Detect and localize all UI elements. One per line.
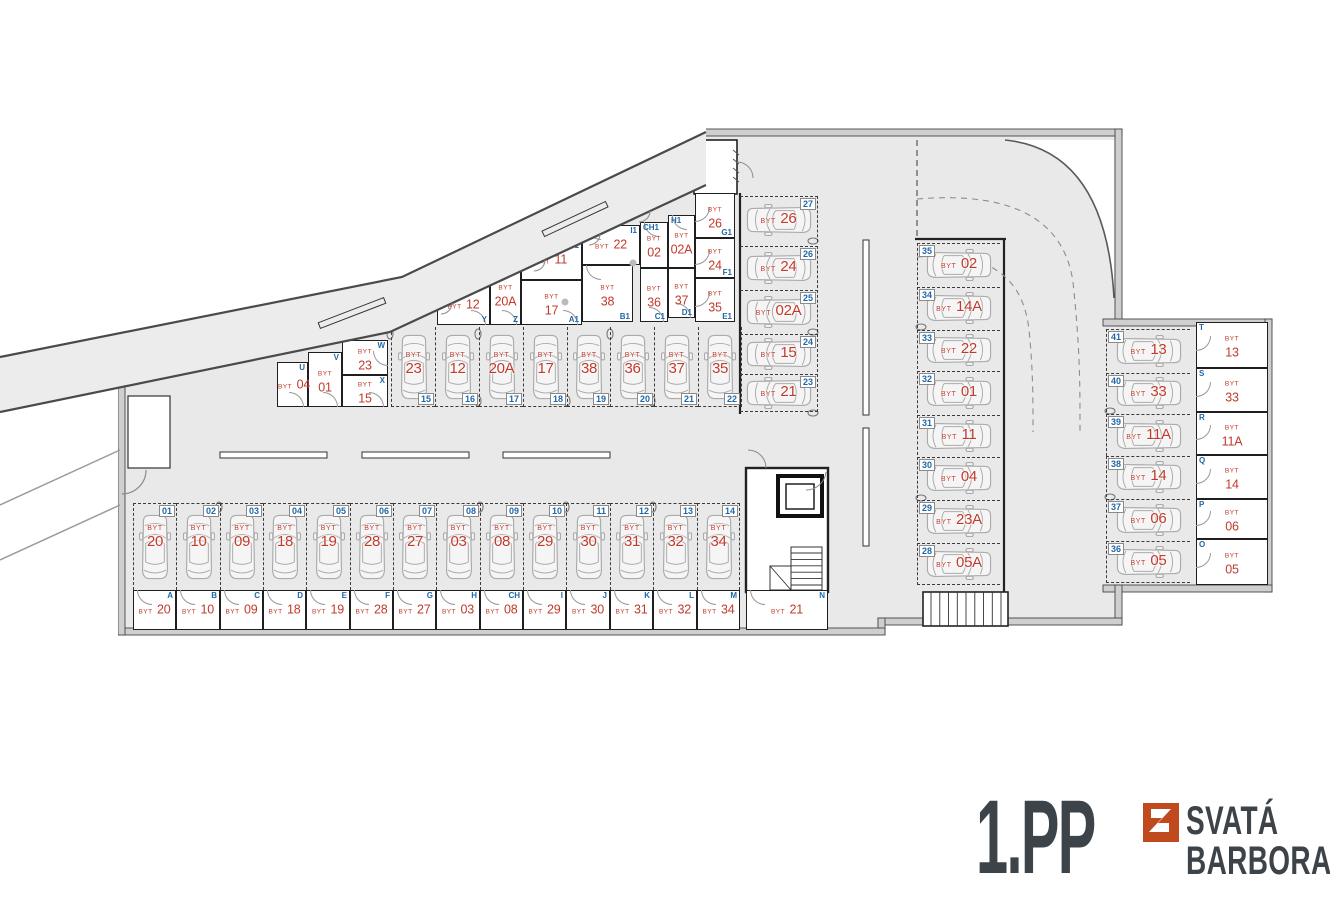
room-code: D xyxy=(297,591,303,600)
room-code: M xyxy=(730,591,737,600)
room-code: S xyxy=(1199,369,1204,378)
cellar-room: BYT 27G xyxy=(393,590,436,630)
room-apartment-label: BYT 31 xyxy=(611,602,652,618)
room-apartment-label: BYT 28 xyxy=(351,602,392,618)
room-code: I xyxy=(561,591,563,600)
room-apartment-label: BYT 20 xyxy=(134,602,175,618)
room-apartment-label: BYT 08 xyxy=(481,602,522,618)
room-apartment-label: BYT13 xyxy=(1197,328,1267,360)
cellar-room: BYT 34M xyxy=(697,590,740,630)
brand-logo-icon xyxy=(1143,803,1179,842)
cellar-room: BYT 20A xyxy=(133,590,176,630)
room-code: CH xyxy=(508,591,520,600)
cellar-room: BYT 08CH xyxy=(480,590,523,630)
room-apartment-label: BYT 29 xyxy=(524,602,565,618)
room-code: P xyxy=(1199,500,1204,509)
room-apartment-label: BYT05 xyxy=(1197,545,1267,577)
room-code: O xyxy=(1199,540,1205,549)
cellar-room: BYT 10B xyxy=(176,590,220,630)
room-apartment-label: BYT 30 xyxy=(567,602,609,618)
room-apartment-label: BYT14 xyxy=(1197,460,1267,492)
room-apartment-label: BYT06 xyxy=(1197,502,1267,534)
cellar-room: BYT 18D xyxy=(263,590,306,630)
room-code: E xyxy=(342,591,347,600)
room-code: N xyxy=(819,591,825,600)
garage-floorplan: BYT2001 BYT1002 BYT0903 xyxy=(0,0,1330,920)
room-apartment-label: BYT 21 xyxy=(747,602,827,618)
brand-name: SVATÁ BARBORA xyxy=(1186,801,1330,881)
floor-label: 1.PP xyxy=(976,795,1095,881)
cellar-room: BYT14Q xyxy=(1196,455,1268,499)
room-code: K xyxy=(644,591,650,600)
cellar-room: BYT11AR xyxy=(1196,412,1268,455)
cellar-room: BYT 32L xyxy=(653,590,697,630)
cellar-room: BYT 19E xyxy=(306,590,350,630)
cellar-room: BYT 30J xyxy=(566,590,610,630)
cellar-room: BYT 28F xyxy=(350,590,393,630)
room-apartment-label: BYT 34 xyxy=(698,602,739,618)
cellar-room: BYT 03H xyxy=(436,590,480,630)
room-code: Q xyxy=(1199,456,1205,465)
cellar-room: BYT 09C xyxy=(220,590,263,630)
brand-name-top: SVATÁ xyxy=(1186,799,1278,843)
room-apartment-label: BYT 32 xyxy=(654,602,696,618)
room-code: T xyxy=(1199,323,1204,332)
brand-name-bottom: BARBORA xyxy=(1186,839,1330,883)
room-code: J xyxy=(603,591,607,600)
room-apartment-label: BYT11A xyxy=(1197,417,1267,449)
room-code: C xyxy=(254,591,260,600)
room-apartment-label: BYT33 xyxy=(1197,373,1267,405)
floorplan-page: BYT2001 BYT1002 BYT0903 xyxy=(0,0,1330,920)
room-apartment-label: BYT 18 xyxy=(264,602,305,618)
cellar-room: BYT 21N xyxy=(746,590,828,630)
room-apartment-label: BYT 19 xyxy=(307,602,349,618)
room-apartment-label: BYT 03 xyxy=(437,602,479,618)
room-code: H xyxy=(471,591,477,600)
cellar-room: BYT06P xyxy=(1196,499,1268,539)
room-code: G xyxy=(427,591,433,600)
room-code: L xyxy=(689,591,694,600)
cellar-room: BYT33S xyxy=(1196,368,1268,412)
cellar-room: BYT13T xyxy=(1196,322,1268,368)
room-code: A xyxy=(167,591,173,600)
cellar-room: BYT 29I xyxy=(523,590,566,630)
room-code: F xyxy=(385,591,390,600)
cellar-rooms-layer: BYT 20ABYT 10BBYT 09CBYT 18DBYT 19EBYT 2… xyxy=(0,0,1330,920)
room-code: R xyxy=(1199,413,1205,422)
cellar-room: BYT05O xyxy=(1196,539,1268,585)
room-code: B xyxy=(211,591,217,600)
cellar-room: BYT 31K xyxy=(610,590,653,630)
room-apartment-label: BYT 27 xyxy=(394,602,435,618)
room-apartment-label: BYT 09 xyxy=(221,602,262,618)
room-apartment-label: BYT 10 xyxy=(177,602,219,618)
